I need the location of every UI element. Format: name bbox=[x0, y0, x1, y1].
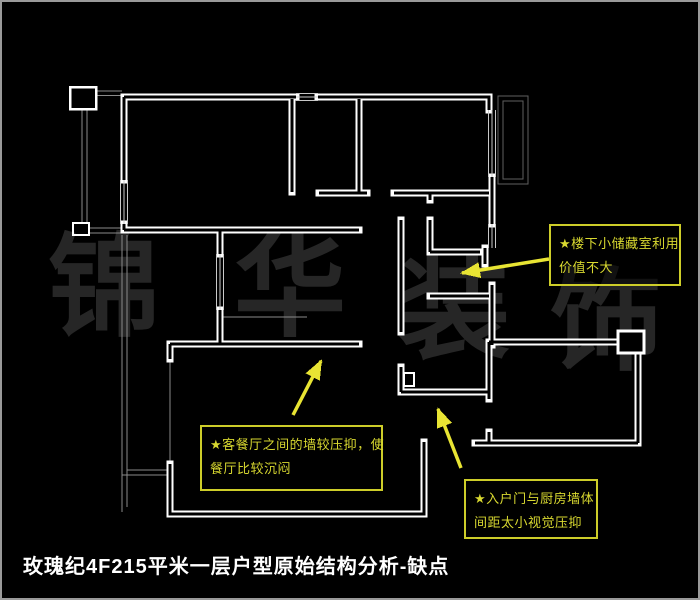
corner-column bbox=[70, 87, 96, 109]
annotation-line: ★楼下小储藏室利用 bbox=[559, 232, 671, 256]
annotation-line: 价值不大 bbox=[559, 256, 671, 280]
windows bbox=[121, 94, 496, 311]
arrow-storage bbox=[462, 259, 549, 273]
annotation-dining-note: ★客餐厅之间的墙较压抑，使 餐厅比较沉闷 bbox=[200, 425, 383, 491]
floor-plan-screenshot: 锦 华 装 饰 bbox=[0, 0, 700, 600]
top-right-balcony bbox=[498, 96, 528, 184]
annotation-line: ★入户门与厨房墙体 bbox=[474, 487, 588, 511]
arrow-entry bbox=[438, 409, 461, 468]
annotation-storage-note: ★楼下小储藏室利用 价值不大 bbox=[549, 224, 681, 286]
annotation-line: ★客餐厅之间的墙较压抑，使 bbox=[210, 433, 373, 457]
annotation-line: 餐厅比较沉闷 bbox=[210, 457, 373, 481]
annotation-entry-note: ★入户门与厨房墙体 间距太小视觉压抑 bbox=[464, 479, 598, 539]
arrow-dining bbox=[293, 361, 321, 415]
structural-column bbox=[618, 331, 644, 353]
rail-post bbox=[73, 223, 89, 235]
page-title: 玫瑰纪4F215平米一层户型原始结构分析-缺点 bbox=[23, 550, 449, 579]
entry-door-leaf bbox=[404, 373, 414, 386]
annotation-line: 间距太小视觉压抑 bbox=[474, 511, 588, 535]
